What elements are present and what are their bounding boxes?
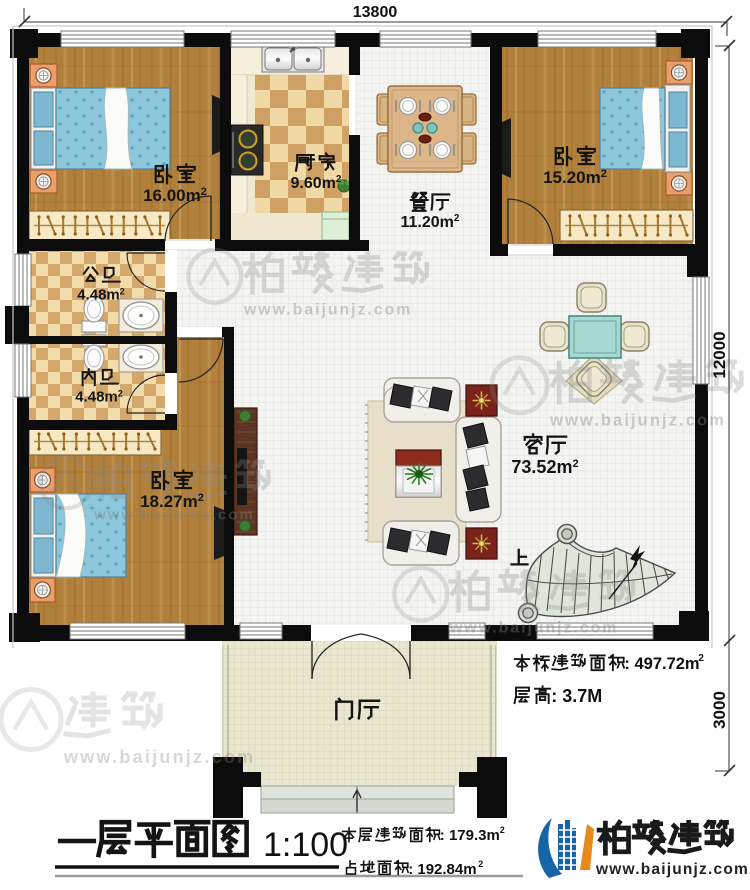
svg-text:9.60m2: 9.60m2 (291, 174, 342, 192)
svg-text:: 192.84m: : 192.84m (408, 861, 476, 878)
svg-text:2: 2 (500, 825, 505, 835)
svg-text:13800: 13800 (353, 4, 398, 21)
svg-text:4.48m2: 4.48m2 (75, 388, 123, 405)
svg-text:: 3.7M: : 3.7M (551, 686, 602, 706)
svg-text:: 179.3m: : 179.3m (440, 827, 500, 844)
svg-text:www.baijunjz.com: www.baijunjz.com (595, 861, 749, 878)
svg-text:2: 2 (698, 653, 704, 664)
svg-text:15.20m2: 15.20m2 (543, 168, 607, 187)
svg-text:4.48m2: 4.48m2 (77, 286, 125, 303)
svg-text:18.27m2: 18.27m2 (140, 492, 204, 511)
svg-text:11.20m2: 11.20m2 (401, 213, 460, 231)
svg-text:1:100: 1:100 (263, 826, 348, 864)
svg-text:2: 2 (478, 859, 483, 869)
svg-text:73.52m2: 73.52m2 (511, 457, 578, 477)
svg-text:www.baijunjz.com: www.baijunjz.com (63, 747, 255, 767)
svg-text:: 497.72m: : 497.72m (624, 655, 699, 673)
svg-text:12000: 12000 (710, 331, 729, 378)
svg-text:www.baijunjz.com: www.baijunjz.com (549, 410, 726, 429)
svg-text:3000: 3000 (710, 691, 729, 729)
svg-text:www.baijunjz.com: www.baijunjz.com (449, 619, 618, 636)
svg-text:www.baijunjz.com: www.baijunjz.com (243, 301, 412, 318)
svg-text:16.00m2: 16.00m2 (143, 186, 207, 205)
